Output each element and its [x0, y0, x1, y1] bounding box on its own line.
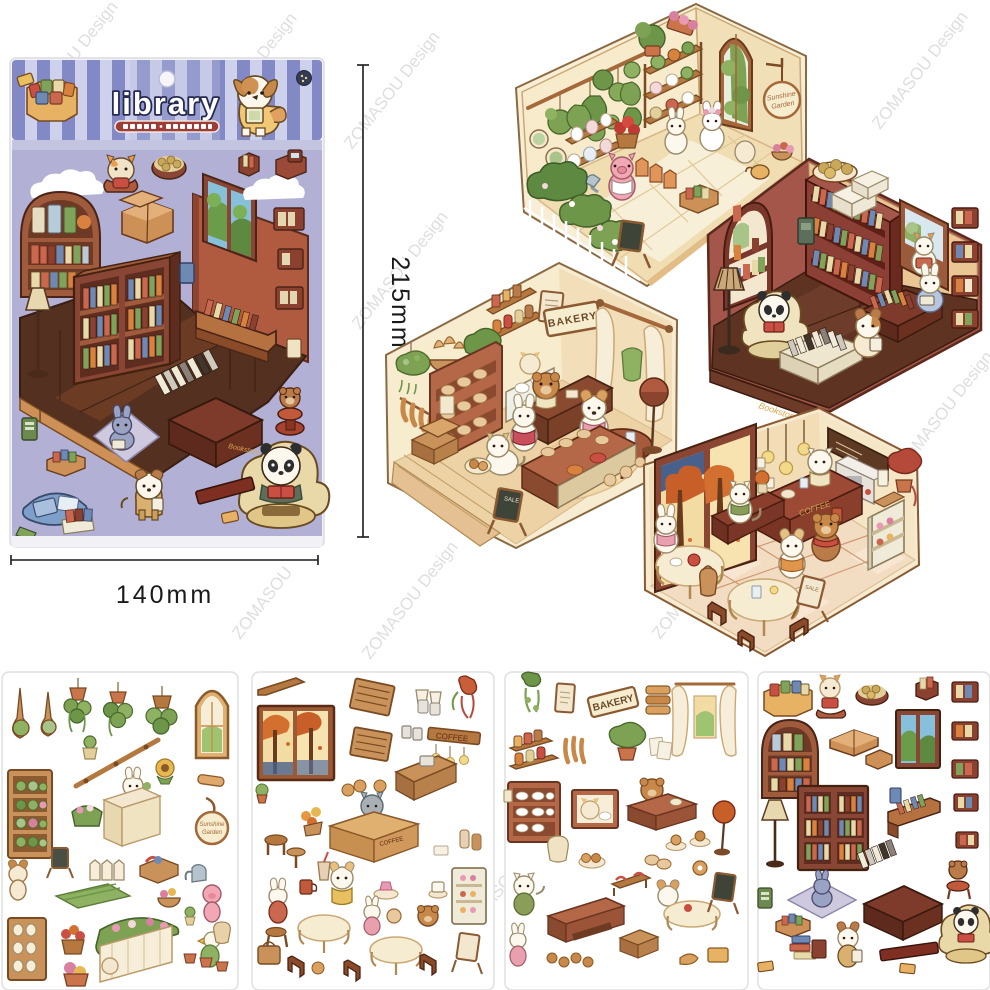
svg-text:215mm: 215mm	[386, 256, 414, 349]
svg-text:Sunshine: Sunshine	[199, 822, 225, 828]
svg-text:Garden: Garden	[202, 830, 223, 836]
svg-text:library: library	[112, 86, 221, 121]
svg-text:140mm: 140mm	[116, 581, 214, 609]
